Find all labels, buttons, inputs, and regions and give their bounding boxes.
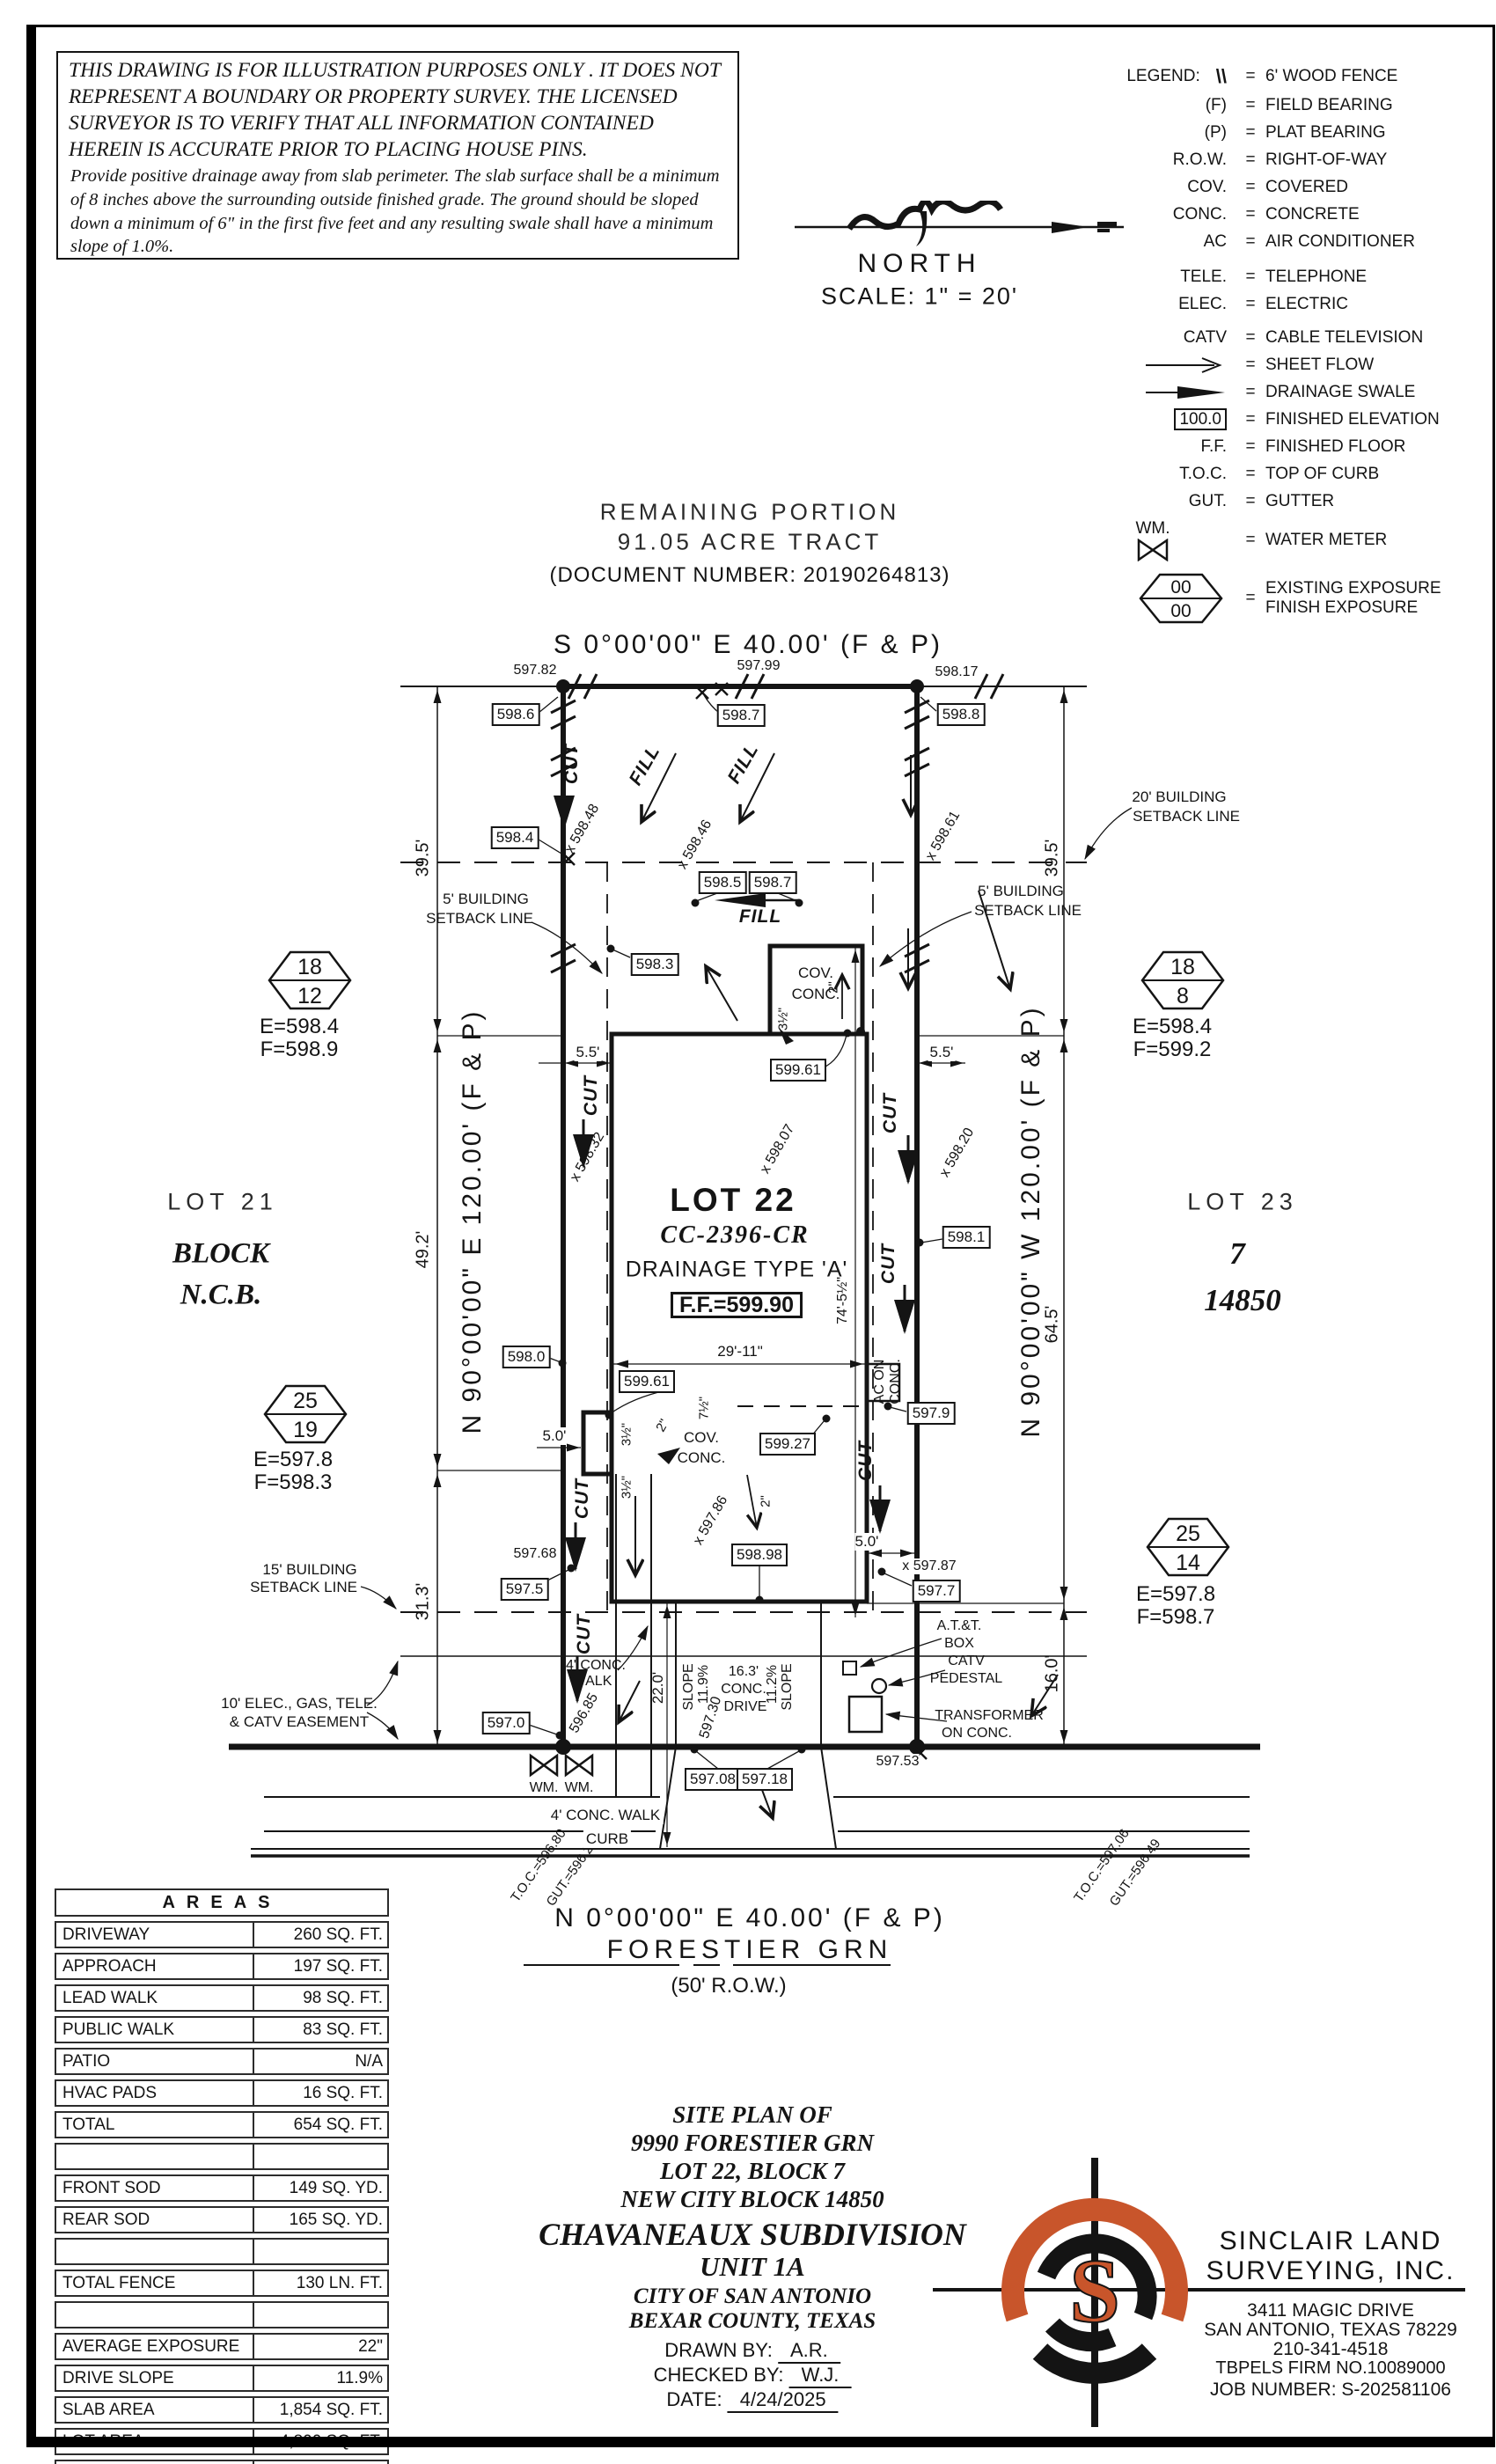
table-row: LEAD WALK98 SQ. FT. xyxy=(55,1984,389,2012)
elev-box: 598.4 xyxy=(491,826,539,849)
bearing-west-line: N 90°00'00" E 120.00' (F & P) xyxy=(458,1009,488,1434)
scale-label: SCALE: 1" = 20' xyxy=(821,283,1018,311)
elev-box: 599.27 xyxy=(759,1433,816,1456)
lot21-name: LOT 21 xyxy=(167,1189,278,1216)
cut-label: CUT xyxy=(561,744,583,784)
svg-text:25: 25 xyxy=(1176,1522,1200,1546)
elev-box: 598.7 xyxy=(717,704,766,727)
company-name-line2: SURVEYING, INC. xyxy=(1206,2256,1456,2286)
svg-text:00: 00 xyxy=(1170,601,1191,621)
svg-text:S: S xyxy=(1069,2240,1120,2342)
sheet-flow-icon xyxy=(1079,356,1236,375)
exposure-marker-25-19: 2519 xyxy=(263,1381,348,1448)
exposure-marker-18-12: 1812 xyxy=(268,947,352,1014)
titleblock-ncb: NEW CITY BLOCK 14850 xyxy=(620,2186,884,2213)
table-row-empty xyxy=(55,2301,389,2328)
lot22-name: LOT 22 xyxy=(670,1182,796,1219)
elev-box: 598.1 xyxy=(942,1226,991,1249)
table-row: DRIVEWAY260 SQ. FT. xyxy=(55,1921,389,1948)
tract-doc-number: (DOCUMENT NUMBER: 20190264813) xyxy=(549,563,950,588)
disclaimer-main: THIS DRAWING IS FOR ILLUSTRATION PURPOSE… xyxy=(69,58,729,163)
checked-by-value: W.J. xyxy=(789,2364,852,2388)
fill-label: FILL xyxy=(739,906,781,928)
date-value: 4/24/2025 xyxy=(728,2388,839,2413)
cut-label: CUT xyxy=(581,1075,602,1116)
table-row: FRONT SOD149 SQ. YD. xyxy=(55,2174,389,2202)
company-address1: 3411 MAGIC DRIVE xyxy=(1247,2300,1414,2321)
elev-box: 597.08 xyxy=(685,1768,741,1791)
elev-box: 598.3 xyxy=(631,953,679,976)
catv-pedestal-label1: CATV xyxy=(948,1654,984,1669)
table-row-empty xyxy=(55,2143,389,2170)
setback-20-line1: 20' BUILDING xyxy=(1132,788,1226,806)
covered-concrete-label: CONC. xyxy=(678,1449,726,1467)
elev-box: 598.98 xyxy=(731,1544,788,1566)
svg-text:12: 12 xyxy=(297,984,322,1008)
table-row-empty xyxy=(55,2238,389,2265)
catv-pedestal-label2: PEDESTAL xyxy=(930,1671,1002,1687)
setback-5-right-line1: 5' BUILDING xyxy=(978,883,1064,900)
finish-elev: F=598.9 xyxy=(260,1038,339,1062)
areas-table-title: AREAS xyxy=(55,1888,389,1917)
dim-31-3: 31.3' xyxy=(414,1583,434,1621)
spot-elev: 597.53 xyxy=(876,1754,920,1770)
table-row-empty xyxy=(55,2460,389,2464)
plat-bearing-symbol: (P) xyxy=(1079,123,1236,143)
drive-dim-16-3: 16.3' xyxy=(729,1664,759,1680)
tract-line1: REMAINING PORTION xyxy=(600,499,900,526)
table-row: TOTAL654 SQ. FT. xyxy=(55,2111,389,2138)
drainage-swale-icon xyxy=(1079,383,1236,402)
titleblock-city: CITY OF SAN ANTONIO xyxy=(634,2284,871,2309)
checked-by-row: CHECKED BY: W.J. xyxy=(654,2364,852,2388)
elev-box: 597.7 xyxy=(913,1580,961,1602)
setback-5-left-line2: SETBACK LINE xyxy=(426,910,533,928)
svg-text:8: 8 xyxy=(1177,984,1189,1008)
company-name-line1: SINCLAIR LAND xyxy=(1220,2226,1442,2256)
table-row: TOTAL FENCE130 LN. FT. xyxy=(55,2270,389,2297)
finish-elev: F=598.3 xyxy=(254,1470,333,1495)
existing-elev: E=598.4 xyxy=(1133,1015,1212,1039)
spot-elev: 597.99 xyxy=(737,658,781,674)
dim-3-5: 3½" xyxy=(620,1476,634,1499)
ac-on-conc-label: CONC. xyxy=(888,1359,904,1404)
elev-box: 598.6 xyxy=(492,703,540,726)
drive-label: DRIVE xyxy=(724,1699,767,1715)
elev-box: 598.0 xyxy=(502,1346,551,1368)
exposure-marker-25-14: 2514 xyxy=(1146,1514,1230,1580)
cut-label: CUT xyxy=(878,1243,899,1284)
table-row: APPROACH197 SQ. FT. xyxy=(55,1953,389,1980)
dim-16-0: 16.0' xyxy=(1043,1655,1063,1693)
existing-elev: E=598.4 xyxy=(260,1015,339,1039)
finished-floor-elevation: F.F.=599.90 xyxy=(671,1292,803,1318)
att-box-label2: BOX xyxy=(944,1636,974,1652)
legend-title: LEGEND: xyxy=(1126,67,1199,86)
dim-49-2: 49.2' xyxy=(414,1231,434,1269)
bearing-east-line: N 90°00'00" W 120.00' (F & P) xyxy=(1016,1005,1046,1437)
water-meter-label: WM. xyxy=(565,1780,594,1796)
legend: LEGEND:\\=6' WOOD FENCE (F)=FIELD BEARIN… xyxy=(1079,65,1473,635)
bearing-north-line: S 0°00'00" E 40.00' (F & P) xyxy=(554,630,942,660)
dim-22-0: 22.0' xyxy=(649,1672,667,1704)
table-row: PATION/A xyxy=(55,2048,389,2075)
drive-slope2-label: SLOPE xyxy=(780,1663,796,1710)
public-walk-label: 4' CONC. WALK xyxy=(547,1807,664,1824)
lot23-block: 7 xyxy=(1229,1236,1245,1272)
elev-box: 598.5 xyxy=(699,871,747,894)
titleblock-address: 9990 FORESTIER GRN xyxy=(631,2130,874,2157)
dim-7-5: 7½" xyxy=(697,1397,712,1419)
date-row: DATE: 4/24/2025 xyxy=(666,2388,838,2413)
drawn-by-row: DRAWN BY: A.R. xyxy=(664,2339,840,2364)
company-firm-number: TBPELS FIRM NO.10089000 xyxy=(1215,2358,1445,2379)
dim-5-5-left: 5.5' xyxy=(575,1044,602,1061)
areas-table: AREAS DRIVEWAY260 SQ. FT. APPROACH197 SQ… xyxy=(55,1888,389,2464)
svg-text:14: 14 xyxy=(1176,1551,1200,1575)
water-meter-label: WM. xyxy=(530,1780,559,1796)
elev-box: 597.0 xyxy=(482,1712,531,1734)
setback-15-line1: 15' BUILDING xyxy=(262,1561,356,1579)
tract-line2: 91.05 ACRE TRACT xyxy=(618,529,883,556)
elev-box: 597.9 xyxy=(907,1402,956,1425)
existing-elev: E=597.8 xyxy=(253,1448,333,1472)
lead-walk-label1: 4' CONC. xyxy=(566,1658,626,1674)
disclaimer-box: THIS DRAWING IS FOR ILLUSTRATION PURPOSE… xyxy=(56,51,739,260)
finish-elev: F=599.2 xyxy=(1133,1038,1212,1062)
transformer-label2: ON CONC. xyxy=(942,1726,1012,1742)
exposure-hexagon-icon: 0000 xyxy=(1079,569,1236,627)
street-name: FORESTIER GRN xyxy=(607,1935,893,1965)
drive-slope-label: SLOPE xyxy=(681,1663,697,1710)
curb-label: CURB xyxy=(583,1830,631,1848)
company-phone: 210-341-4518 xyxy=(1273,2339,1389,2360)
covered-concrete-label: CONC. xyxy=(792,986,840,1003)
lot23-name: LOT 23 xyxy=(1187,1189,1298,1216)
lead-walk-label2: WALK xyxy=(573,1674,612,1690)
drive-slope2-pct: 11.2% xyxy=(765,1665,781,1704)
finish-elev: F=598.7 xyxy=(1137,1605,1215,1630)
company-address2: SAN ANTONIO, TEXAS 78229 xyxy=(1204,2320,1457,2341)
lot21-ncb: N.C.B. xyxy=(180,1280,262,1312)
covered-concrete-label: COV. xyxy=(798,964,833,982)
street-underline xyxy=(524,1964,679,1966)
sinclair-logo: S xyxy=(984,2167,1208,2422)
drawn-by-value: A.R. xyxy=(778,2339,840,2364)
dim-74-5: 74'-5½" xyxy=(835,1277,851,1324)
dim-3-5: 3½" xyxy=(620,1423,634,1446)
titleblock-county: BEXAR COUNTY, TEXAS xyxy=(629,2309,876,2334)
company-job-number: JOB NUMBER: S-202581106 xyxy=(1210,2380,1451,2401)
elev-box: 599.61 xyxy=(619,1370,675,1393)
finished-elevation-symbol: 100.0 xyxy=(1174,408,1227,430)
dim-5-0-right: 5.0' xyxy=(855,1533,879,1551)
svg-text:00: 00 xyxy=(1170,577,1191,598)
bearing-south-line: N 0°00'00" E 40.00' (F & P) xyxy=(554,1903,945,1933)
setback-5-right-line2: SETBACK LINE xyxy=(974,902,1082,920)
north-label: NORTH xyxy=(857,249,981,279)
svg-text:19: 19 xyxy=(293,1418,318,1442)
spot-elev: 598.17 xyxy=(935,664,979,680)
dim-39-5-right: 39.5' xyxy=(1043,840,1063,877)
exposure-marker-18-8: 188 xyxy=(1140,947,1225,1014)
dim-64-5: 64.5' xyxy=(1043,1306,1063,1344)
dim-29-11: 29'-11" xyxy=(715,1343,766,1360)
spot-elev: 597.82 xyxy=(514,663,557,678)
dim-5-5-right: 5.5' xyxy=(928,1044,956,1061)
lot22-drainage-type: DRAINAGE TYPE 'A' xyxy=(626,1258,848,1283)
spot-elev: x 597.87 xyxy=(902,1558,956,1574)
dim-3-5: 3½" xyxy=(776,1008,791,1030)
street-underline xyxy=(733,1964,891,1966)
cut-label: CUT xyxy=(880,1093,901,1133)
street-underline xyxy=(693,1964,720,1966)
elev-box: 599.61 xyxy=(770,1059,826,1082)
titleblock-lot-block: LOT 22, BLOCK 7 xyxy=(660,2158,845,2185)
dim-5-0-entry: 5.0' xyxy=(543,1427,567,1445)
elev-box: 597.18 xyxy=(737,1768,793,1791)
svg-text:18: 18 xyxy=(1170,955,1195,979)
ac-on-conc-label: AC ON xyxy=(872,1360,888,1404)
table-row: PUBLIC WALK83 SQ. FT. xyxy=(55,2016,389,2043)
cut-label: CUT xyxy=(855,1441,876,1481)
table-row: DRIVE SLOPE11.9% xyxy=(55,2365,389,2392)
cut-label: CUT xyxy=(574,1614,595,1654)
street-row-width: (50' R.O.W.) xyxy=(671,1974,786,1998)
titleblock-unit: UNIT 1A xyxy=(700,2251,805,2283)
titleblock-subdivision: CHAVANEAUX SUBDIVISION xyxy=(539,2216,966,2253)
elev-box: 597.5 xyxy=(501,1578,549,1601)
cut-label: CUT xyxy=(572,1478,593,1519)
existing-elev: E=597.8 xyxy=(1136,1582,1215,1607)
covered-concrete-label: COV. xyxy=(684,1429,719,1447)
titleblock-site-plan-of: SITE PLAN OF xyxy=(672,2101,832,2129)
table-row: REAR SOD165 SQ. YD. xyxy=(55,2206,389,2233)
drive-conc: CONC. xyxy=(721,1682,766,1698)
setback-15-line2: SETBACK LINE xyxy=(250,1579,357,1596)
lot21-block: BLOCK xyxy=(172,1238,269,1271)
dim-39-5-left: 39.5' xyxy=(414,840,434,877)
field-bearing-symbol: (F) xyxy=(1079,96,1236,115)
setback-5-left-line1: 5' BUILDING xyxy=(443,891,529,908)
site-plan-sheet: THIS DRAWING IS FOR ILLUSTRATION PURPOSE… xyxy=(0,0,1496,2464)
elev-box: 598.8 xyxy=(937,703,986,726)
table-row: AVERAGE EXPOSURE22" xyxy=(55,2333,389,2360)
lot23-ncb: 14850 xyxy=(1204,1283,1281,1318)
spot-elev: 597.68 xyxy=(514,1546,557,1562)
table-row: SLAB AREA1,854 SQ. FT. xyxy=(55,2396,389,2424)
easement-line2: & CATV EASEMENT xyxy=(230,1713,369,1731)
easement-line1: 10' ELEC., GAS, TELE. xyxy=(221,1695,378,1712)
svg-text:25: 25 xyxy=(293,1389,318,1413)
dim-2: 2" xyxy=(759,1495,774,1507)
table-row: LOT AREA4,800 SQ. FT. xyxy=(55,2428,389,2455)
disclaimer-note: Provide positive drainage away from slab… xyxy=(70,165,729,259)
att-box-label1: A.T.&T. xyxy=(937,1618,982,1634)
lot22-plan-number: CC-2396-CR xyxy=(660,1221,809,1250)
table-row: HVAC PADS16 SQ. FT. xyxy=(55,2079,389,2107)
wood-fence-symbol: \\ xyxy=(1216,65,1227,88)
water-meter-icon: WM. xyxy=(1079,519,1236,561)
svg-text:18: 18 xyxy=(297,955,322,979)
elev-box: 598.7 xyxy=(749,871,797,894)
setback-20-line2: SETBACK LINE xyxy=(1133,808,1240,825)
transformer-label1: TRANSFORMER xyxy=(935,1708,1044,1724)
